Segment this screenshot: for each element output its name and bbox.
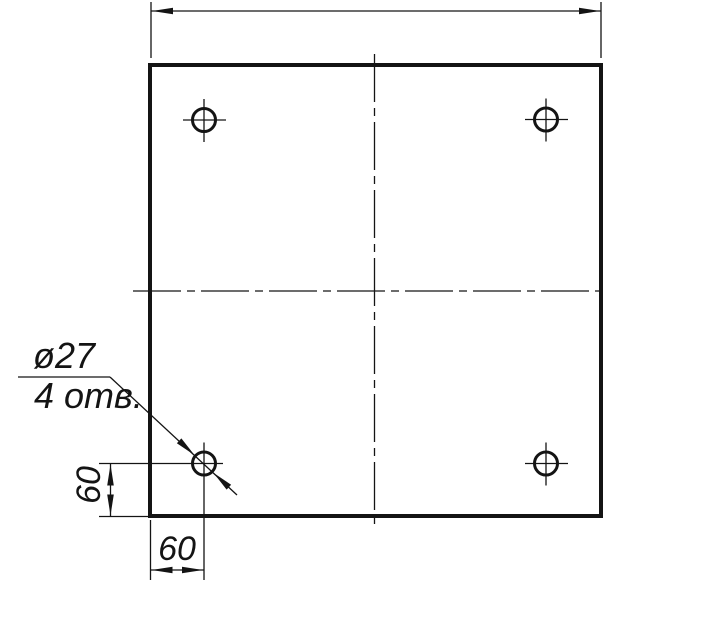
- dimension-arrow-up: [107, 465, 114, 486]
- hole-bottom-right: [525, 443, 568, 486]
- vertical-offset-value: 60: [70, 466, 108, 504]
- dimension-arrow-right: [579, 8, 600, 15]
- horizontal-offset-value: 60: [158, 530, 196, 568]
- plate-drawing-svg: ø27 4 отв. 60 60: [0, 0, 713, 631]
- hole-top-left: [183, 99, 226, 142]
- dimension-arrow-left: [152, 8, 173, 15]
- dimension-arrow-down: [107, 495, 114, 516]
- horizontal-offset-dimension: 60: [151, 520, 205, 580]
- hole-count-label: 4 отв.: [34, 375, 143, 416]
- vertical-offset-dimension: 60: [70, 464, 148, 517]
- top-dimension: [151, 2, 601, 58]
- technical-drawing-canvas: ø27 4 отв. 60 60: [0, 0, 713, 631]
- hole-top-right: [525, 99, 568, 142]
- hole-diameter-label: ø27: [33, 335, 97, 376]
